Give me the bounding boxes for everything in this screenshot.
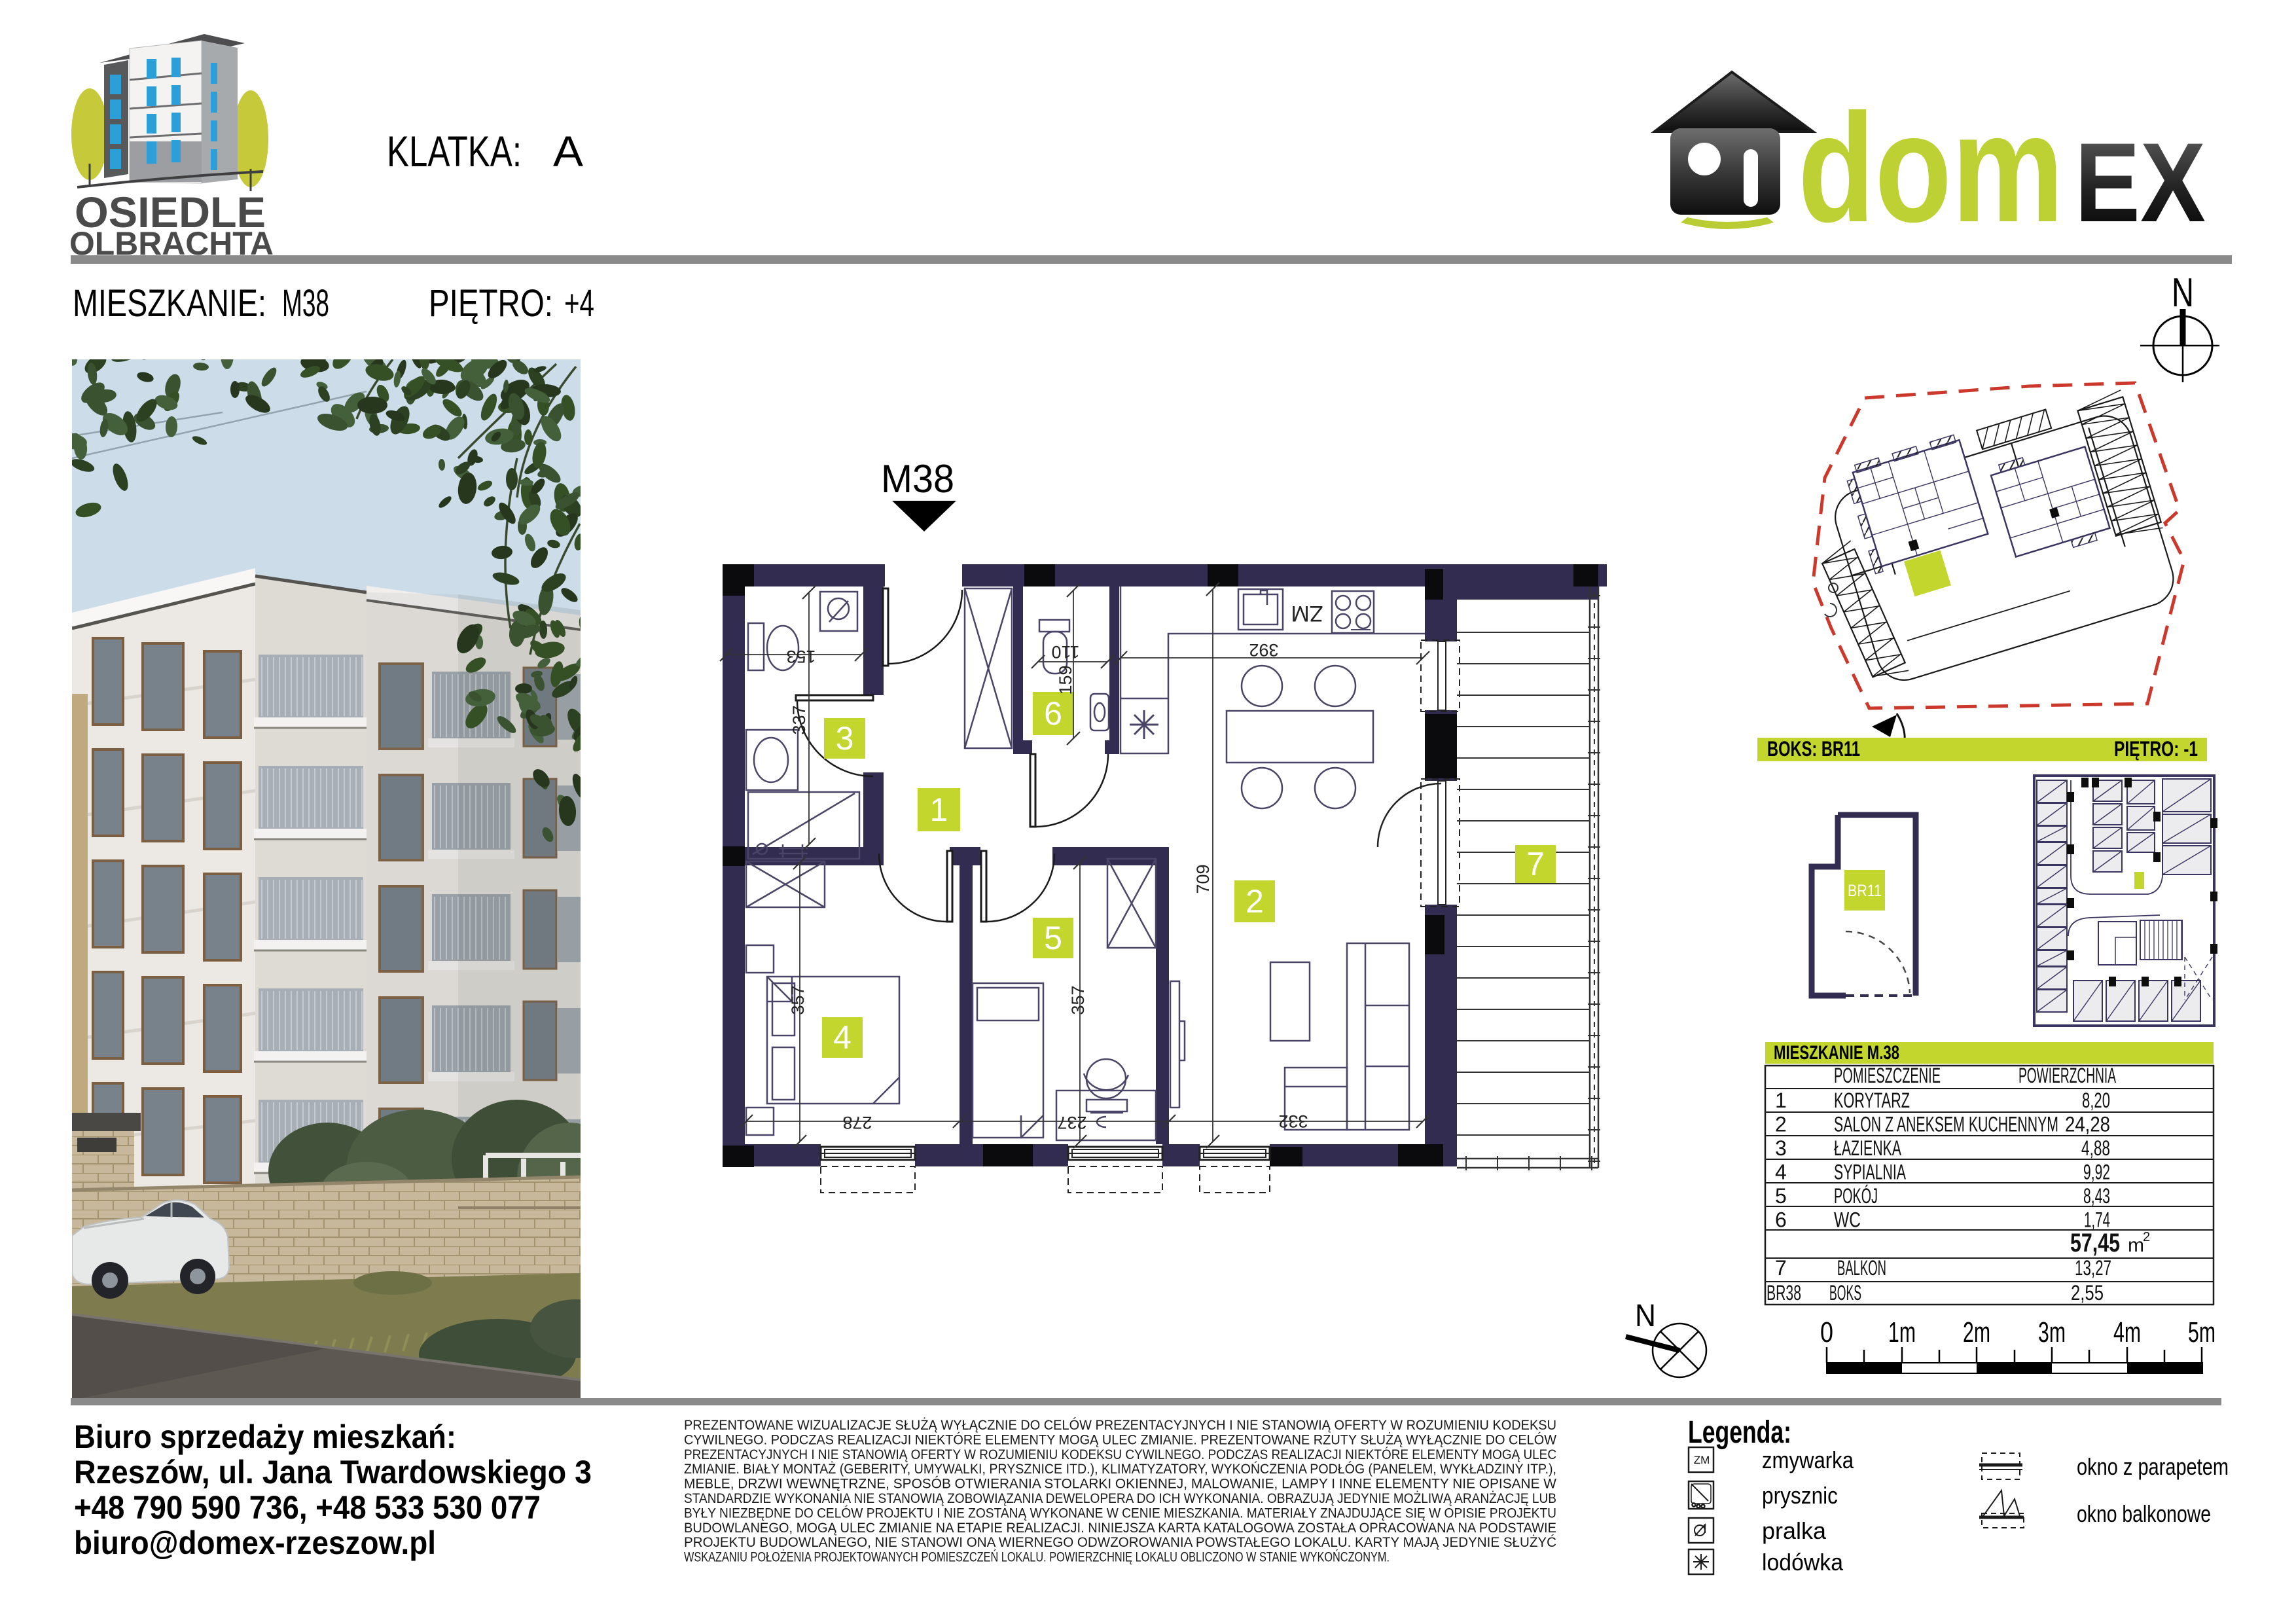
svg-text:prysznic: prysznic [1762,1482,1838,1509]
svg-text:SYPIALNIA: SYPIALNIA [1834,1161,1906,1184]
svg-text:Rzeszów, ul. Jana Twardowskieg: Rzeszów, ul. Jana Twardowskiego 3 [74,1454,592,1490]
svg-text:STANDARDZIE WYKONANIA NIE STAN: STANDARDZIE WYKONANIA NIE STANOWIĄ ZOBOW… [684,1491,1556,1506]
svg-text:MIESZKANIE:: MIESZKANIE: [73,282,266,325]
svg-text:2: 2 [1246,883,1264,920]
svg-text:4: 4 [833,1019,852,1056]
svg-text:KORYTARZ: KORYTARZ [1834,1089,1910,1112]
svg-text:EX: EX [2075,120,2206,245]
svg-text:m: m [2128,1235,2144,1256]
svg-text:PIĘTRO: -1: PIĘTRO: -1 [2114,737,2198,761]
svg-text:dom: dom [1798,82,2064,255]
svg-text:BUDOWLANEGO, MOGĄ ULEC ZMIA: BUDOWLANEGO, MOGĄ ULEC ZMIANIE NA ETAPIE… [684,1521,1556,1536]
svg-text:3: 3 [1775,1136,1787,1160]
svg-text:3: 3 [836,720,854,757]
svg-text:5: 5 [1044,920,1062,956]
svg-text:153: 153 [786,647,816,666]
svg-text:PREZENTACYJNYCH I NIE STANOWIĄ: PREZENTACYJNYCH I NIE STANOWIĄ OFERTY W … [684,1447,1556,1462]
svg-text:357: 357 [1068,985,1088,1015]
svg-text:A: A [553,127,583,175]
svg-text:ŁAZIENKA: ŁAZIENKA [1834,1136,1901,1160]
svg-text:13,27: 13,27 [2075,1256,2111,1280]
svg-text:709: 709 [1193,864,1213,893]
svg-text:332: 332 [1278,1111,1308,1131]
svg-text:POMIESZCZENIE: POMIESZCZENIE [1834,1064,1941,1087]
svg-text:278: 278 [842,1113,872,1132]
svg-text:lodówka: lodówka [1762,1549,1844,1576]
svg-text:pralka: pralka [1762,1517,1827,1544]
svg-text:BOKS: BR11: BOKS: BR11 [1767,737,1860,761]
svg-text:POWIERZCHNIA: POWIERZCHNIA [2018,1064,2116,1087]
svg-text:4m: 4m [2113,1316,2141,1348]
svg-text:159: 159 [1056,665,1075,695]
svg-text:4: 4 [1775,1161,1787,1184]
svg-text:M38: M38 [881,457,954,501]
svg-text:PREZENTOWANE WIZUALIZACJE SŁ: PREZENTOWANE WIZUALIZACJE SŁUŻĄ WYŁĄCZNI… [684,1418,1556,1433]
svg-text:Legenda:: Legenda: [1688,1415,1791,1450]
svg-text:biuro@domex-rzeszow.pl: biuro@domex-rzeszow.pl [74,1525,436,1561]
svg-text:110: 110 [1051,642,1079,662]
svg-text:357: 357 [788,985,808,1015]
svg-text:ZMIANIE. BIAŁY MONTAŻ (GEBE: ZMIANIE. BIAŁY MONTAŻ (GEBERITY, UMYWALK… [684,1462,1556,1477]
svg-text:237: 237 [1057,1113,1086,1132]
svg-text:WSKAZANIU POŁOŻENIA PROJEKTOWA: WSKAZANIU POŁOŻENIA PROJEKTOWANYCH POMIE… [684,1550,1390,1565]
svg-text:6: 6 [1775,1208,1787,1232]
svg-text:337: 337 [789,705,809,734]
svg-text:M38: M38 [282,282,329,325]
svg-text:SALON Z ANEKSEM KUCHENNYM: SALON Z ANEKSEM KUCHENNYM [1834,1113,2058,1136]
svg-text:24,28: 24,28 [2065,1113,2110,1136]
svg-text:ZM: ZM [1291,601,1323,626]
svg-text:3m: 3m [2038,1316,2066,1348]
svg-text:N: N [1635,1299,1656,1333]
svg-text:+48 790 590 736, +48 533 530 0: +48 790 590 736, +48 533 530 077 [74,1489,541,1526]
svg-text:+4: +4 [564,282,594,325]
svg-text:4,88: 4,88 [2081,1136,2110,1160]
svg-text:2: 2 [1775,1113,1787,1136]
svg-text:PIĘTRO:: PIĘTRO: [429,282,553,325]
svg-text:57,45: 57,45 [2070,1229,2120,1257]
svg-text:2,55: 2,55 [2071,1281,2104,1305]
svg-text:N: N [2172,270,2194,316]
svg-text:BYŁY NIEZBĘDNE DO CELÓW PROJEK: BYŁY NIEZBĘDNE DO CELÓW PROJEKTU I NIE Z… [684,1506,1556,1521]
svg-text:392: 392 [1249,640,1278,660]
svg-text:1: 1 [1775,1089,1787,1112]
svg-text:7: 7 [1526,846,1545,882]
svg-text:1: 1 [930,791,948,828]
svg-text:1m: 1m [1888,1316,1916,1348]
svg-text:7: 7 [1775,1256,1787,1280]
svg-text:MIESZKANIE M.38: MIESZKANIE M.38 [1774,1042,1899,1064]
svg-text:Biuro sprzedaży mieszkań:: Biuro sprzedaży mieszkań: [74,1418,456,1455]
svg-text:BALKON: BALKON [1837,1256,1886,1280]
svg-text:8,20: 8,20 [2082,1089,2110,1112]
svg-text:8,43: 8,43 [2083,1184,2110,1208]
svg-text:BOKS: BOKS [1829,1281,1861,1305]
svg-text:5: 5 [1775,1184,1787,1208]
svg-text:2m: 2m [1963,1316,1990,1348]
svg-text:BR11: BR11 [1848,882,1882,900]
svg-text:zmywarka: zmywarka [1762,1447,1854,1473]
svg-text:okno balkonowe: okno balkonowe [2077,1500,2211,1527]
svg-text:6: 6 [1044,695,1062,732]
svg-text:MEBLE, DRZWI WEWNĘTRZNE, SP: MEBLE, DRZWI WEWNĘTRZNE, SPOSÓB OTWIERAN… [684,1477,1556,1492]
svg-text:5m: 5m [2188,1316,2215,1348]
svg-text:ZM: ZM [1694,1454,1710,1466]
svg-text:0: 0 [1820,1316,1833,1348]
svg-text:POKÓJ: POKÓJ [1834,1184,1878,1208]
svg-text:PROJEKTU BUDOWLANEGO, NIE S: PROJEKTU BUDOWLANEGO, NIE STANOWI ONA WI… [684,1535,1556,1550]
svg-text:CYWILNEGO. PODCZAS REALIZACJ: CYWILNEGO. PODCZAS REALIZACJI NIEKTÓRE E… [684,1432,1556,1447]
svg-text:9,92: 9,92 [2083,1161,2110,1184]
svg-text:okno z parapetem: okno z parapetem [2077,1453,2229,1480]
svg-text:2: 2 [2143,1230,2150,1244]
svg-text:BR38: BR38 [1767,1281,1801,1305]
svg-text:KLATKA:: KLATKA: [387,127,522,175]
svg-text:WC: WC [1834,1208,1861,1232]
